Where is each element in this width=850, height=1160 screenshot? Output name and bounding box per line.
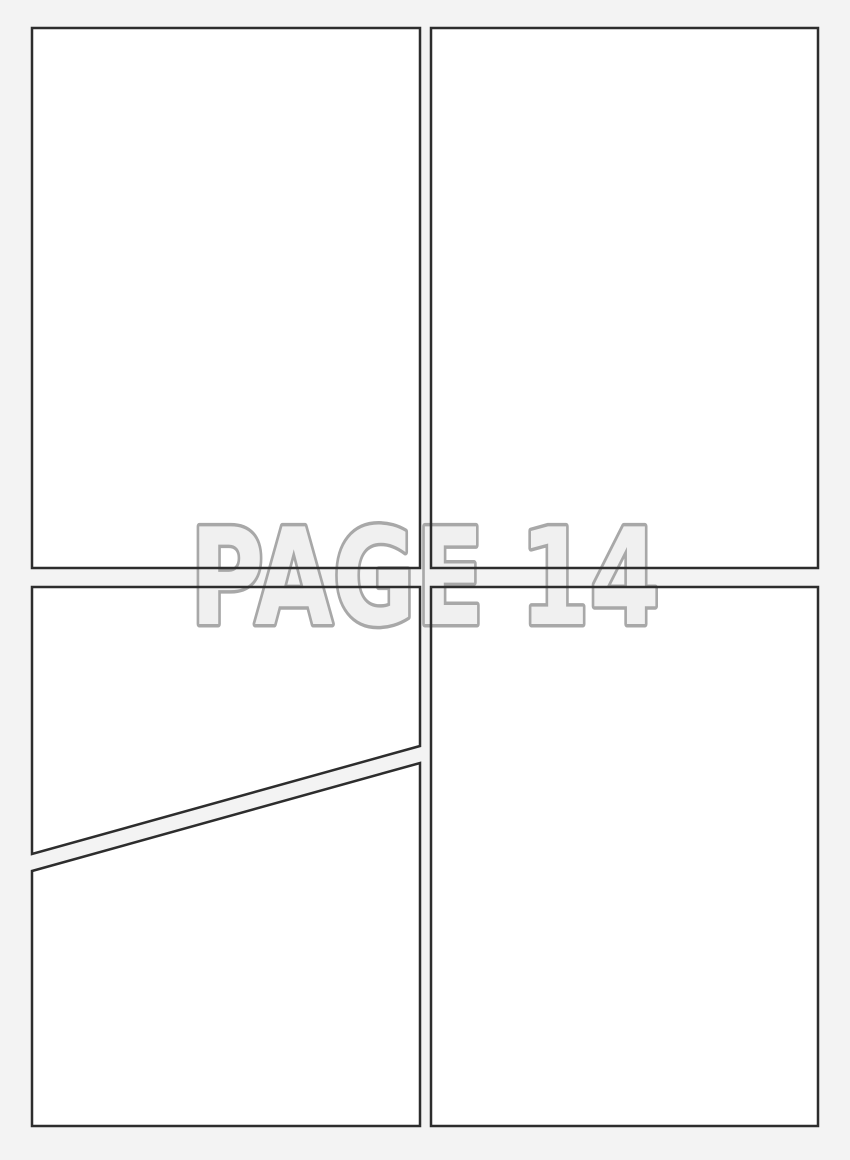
bottom-right-panel — [431, 587, 818, 1126]
top-right-panel — [431, 28, 818, 568]
comic-page-canvas: PAGE 14 — [0, 0, 850, 1160]
top-left-panel — [32, 28, 420, 568]
comic-page-template: PAGE 14 — [0, 0, 850, 1160]
page-number-watermark: PAGE 14 — [190, 500, 660, 656]
